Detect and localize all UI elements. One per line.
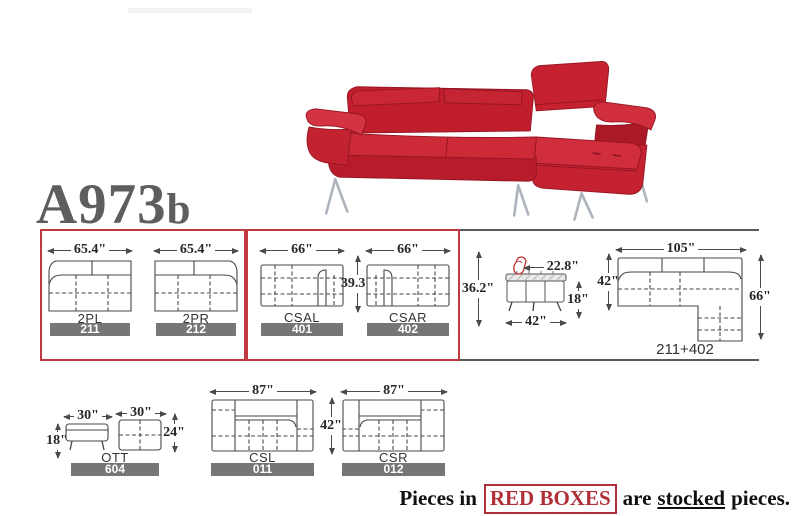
model-number: A973 xyxy=(36,173,167,236)
sofa-photo xyxy=(295,52,667,224)
spec-sheet: A973b 65.4" 2PL 211 65.4" xyxy=(0,0,800,516)
stocked-box-loveseats: 65.4" 2PL 211 65.4" 2PR 212 xyxy=(40,229,246,361)
dim-2pl-width: 65.4" xyxy=(48,242,132,258)
sectional-combo-label: 211+402 xyxy=(650,341,720,358)
dim-headrest-depth: 22.8" xyxy=(524,259,582,275)
note-stocked: stocked xyxy=(657,486,725,511)
piece-code-2pl: 211 xyxy=(50,323,130,336)
dim-seat-height: 18" xyxy=(564,282,592,318)
sectional-top-view-diagram xyxy=(616,256,746,343)
csl-top-view-diagram xyxy=(211,399,314,452)
piece-code-ott: 604 xyxy=(71,463,159,476)
note-suffix: pieces. xyxy=(731,486,790,511)
csr-group: 87" CSR 012 xyxy=(336,380,486,480)
2pl-top-view-diagram xyxy=(48,260,132,312)
dim-csr-width: 87" xyxy=(341,383,447,399)
piece-code-csar: 402 xyxy=(367,323,449,336)
scan-artifact xyxy=(128,8,252,13)
dim-ottoman-depth: 24" xyxy=(160,414,188,452)
csl-group: 87" CSL 011 42" xyxy=(205,380,355,480)
piece-code-2pr: 212 xyxy=(156,323,236,336)
dim-back-height: 36.2" xyxy=(455,252,501,326)
2pr-top-view-diagram xyxy=(154,260,238,312)
piece-code-csal: 401 xyxy=(261,323,343,336)
ottoman-group: 30" 18" 30" 24" OTT 604 xyxy=(40,400,200,490)
dim-csal-width: 66" xyxy=(260,242,344,258)
dim-csar-width: 66" xyxy=(366,242,450,258)
model-variant: b xyxy=(167,186,191,233)
ottoman-top-view-diagram xyxy=(118,419,162,451)
stocked-note: Pieces inRED BOXESarestockedpieces. xyxy=(399,484,790,514)
note-middle: are xyxy=(623,486,652,511)
csal-top-view-diagram xyxy=(260,261,344,307)
piece-code-csr: 012 xyxy=(342,463,445,476)
piece-code-csl: 011 xyxy=(211,463,314,476)
note-prefix: Pieces in xyxy=(399,486,477,511)
dim-front-width: 42" xyxy=(506,314,566,330)
dim-sectional-chaise-depth: 66" xyxy=(745,255,775,339)
spec-section: 36.2" 22.8" 18" 42" 42" xyxy=(460,229,759,361)
dim-csl-width: 87" xyxy=(210,383,316,399)
stocked-box-chaises: 66" CSAL 401 39.3" 66" CSAR 402 xyxy=(246,229,460,361)
page-title: A973b xyxy=(36,176,191,233)
dim-2pr-width: 65.4" xyxy=(154,242,238,258)
dim-sectional-width: 105" xyxy=(616,241,746,257)
ottoman-front-view-diagram xyxy=(64,422,110,452)
csar-top-view-diagram xyxy=(366,261,450,307)
csr-top-view-diagram xyxy=(342,399,445,452)
note-red-boxes: RED BOXES xyxy=(484,484,617,514)
